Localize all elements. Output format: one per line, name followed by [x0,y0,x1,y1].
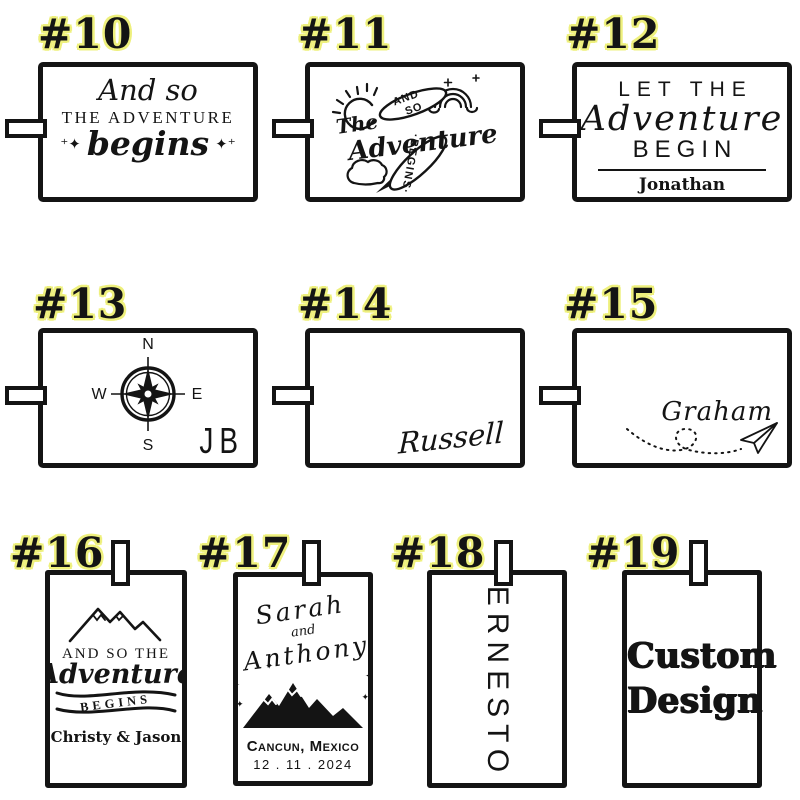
option-label-14: #14 [298,280,392,328]
strap-slot [5,386,47,405]
strap-slot [272,386,314,405]
strap-slot [5,119,47,138]
sparkle-icon: ✦⁺ [215,137,236,152]
personalized-name: Russell [398,415,505,460]
tag-option-11[interactable]: AND SO ·BEGINS· The Adventure [305,62,525,202]
adventure-doodle-art: AND SO ·BEGINS· The Adventure [310,67,520,197]
strap-slot [539,119,581,138]
mountain-icon [68,603,164,643]
compass-east-label: E [192,386,203,403]
compass-south-label: S [143,437,154,454]
design-options-grid: #10 #11 #12 #13 #14 #15 #16 #17 #18 #19 … [0,0,800,800]
personalized-name: Jonathan [639,175,725,195]
begins-swash: BEGINS [53,685,179,721]
compass-west-label: W [91,386,107,403]
option-label-11: #11 [298,10,392,58]
sparkle-icon: ✦ [238,678,241,693]
tag-option-17[interactable]: Sarah and Anthony ✦ ✦ ✦ ✦ ✦ Cancun, Mexi… [233,572,373,786]
personalized-name-vertical: ERNESTO [480,579,514,779]
tag-option-12[interactable]: LET THE Adventure BEGIN Jonathan [572,62,792,202]
location-text: Cancun, Mexico [247,738,360,755]
name-underline [598,169,766,171]
personalized-names: Sarah and Anthony [238,589,368,675]
mountain-icon [241,678,365,730]
date-text: 12 . 11 . 2024 [253,757,353,772]
strap-slot [111,540,130,586]
adventure-script-text: Adventure [581,101,784,138]
paper-plane-trail [623,413,783,463]
tag-option-10[interactable]: And so THE ADVENTURE ⁺✦ begins ✦⁺ [38,62,258,202]
option-label-10: #10 [38,10,132,58]
option-label-12: #12 [566,10,660,58]
sparkle-icon: ✦ [361,693,368,702]
and-so-text: And so [98,76,198,105]
paper-plane-icon [741,423,777,453]
custom-design-line2: Design [627,679,757,724]
tag-option-16[interactable]: AND SO THE Adventure BEGINS Christy & Ja… [45,570,187,788]
tag-option-13[interactable]: N S W E JB [38,328,258,468]
option-label-17: #17 [197,529,291,577]
option-label-15: #15 [564,280,658,328]
strap-slot [272,119,314,138]
custom-design-line1: Custom [627,634,757,679]
strap-slot [494,540,513,586]
strap-slot [689,540,708,586]
sparkle-icon: ✦ [238,700,244,709]
tag-option-18[interactable]: ERNESTO [427,570,567,788]
strap-slot [302,540,321,586]
adventure-script-text: Adventure [50,661,182,688]
compass-north-label: N [142,336,154,353]
option-label-13: #13 [33,280,127,328]
sparkle-icon: ✦ [364,669,368,684]
tag-option-15[interactable]: Graham [572,328,792,468]
custom-design-text: Custom Design [627,634,757,724]
tag-option-14[interactable]: Russell [305,328,525,468]
personalized-initials: JB [199,421,244,462]
personalized-names: Christy & Jason [51,728,182,746]
sparkle-icon: ✦ [265,662,273,672]
strap-slot [539,386,581,405]
sparkle-icon: ⁺✦ [60,137,81,152]
begins-text: begins [87,126,209,162]
begin-text: BEGIN [627,136,738,164]
tag-option-19[interactable]: Custom Design [622,570,762,788]
